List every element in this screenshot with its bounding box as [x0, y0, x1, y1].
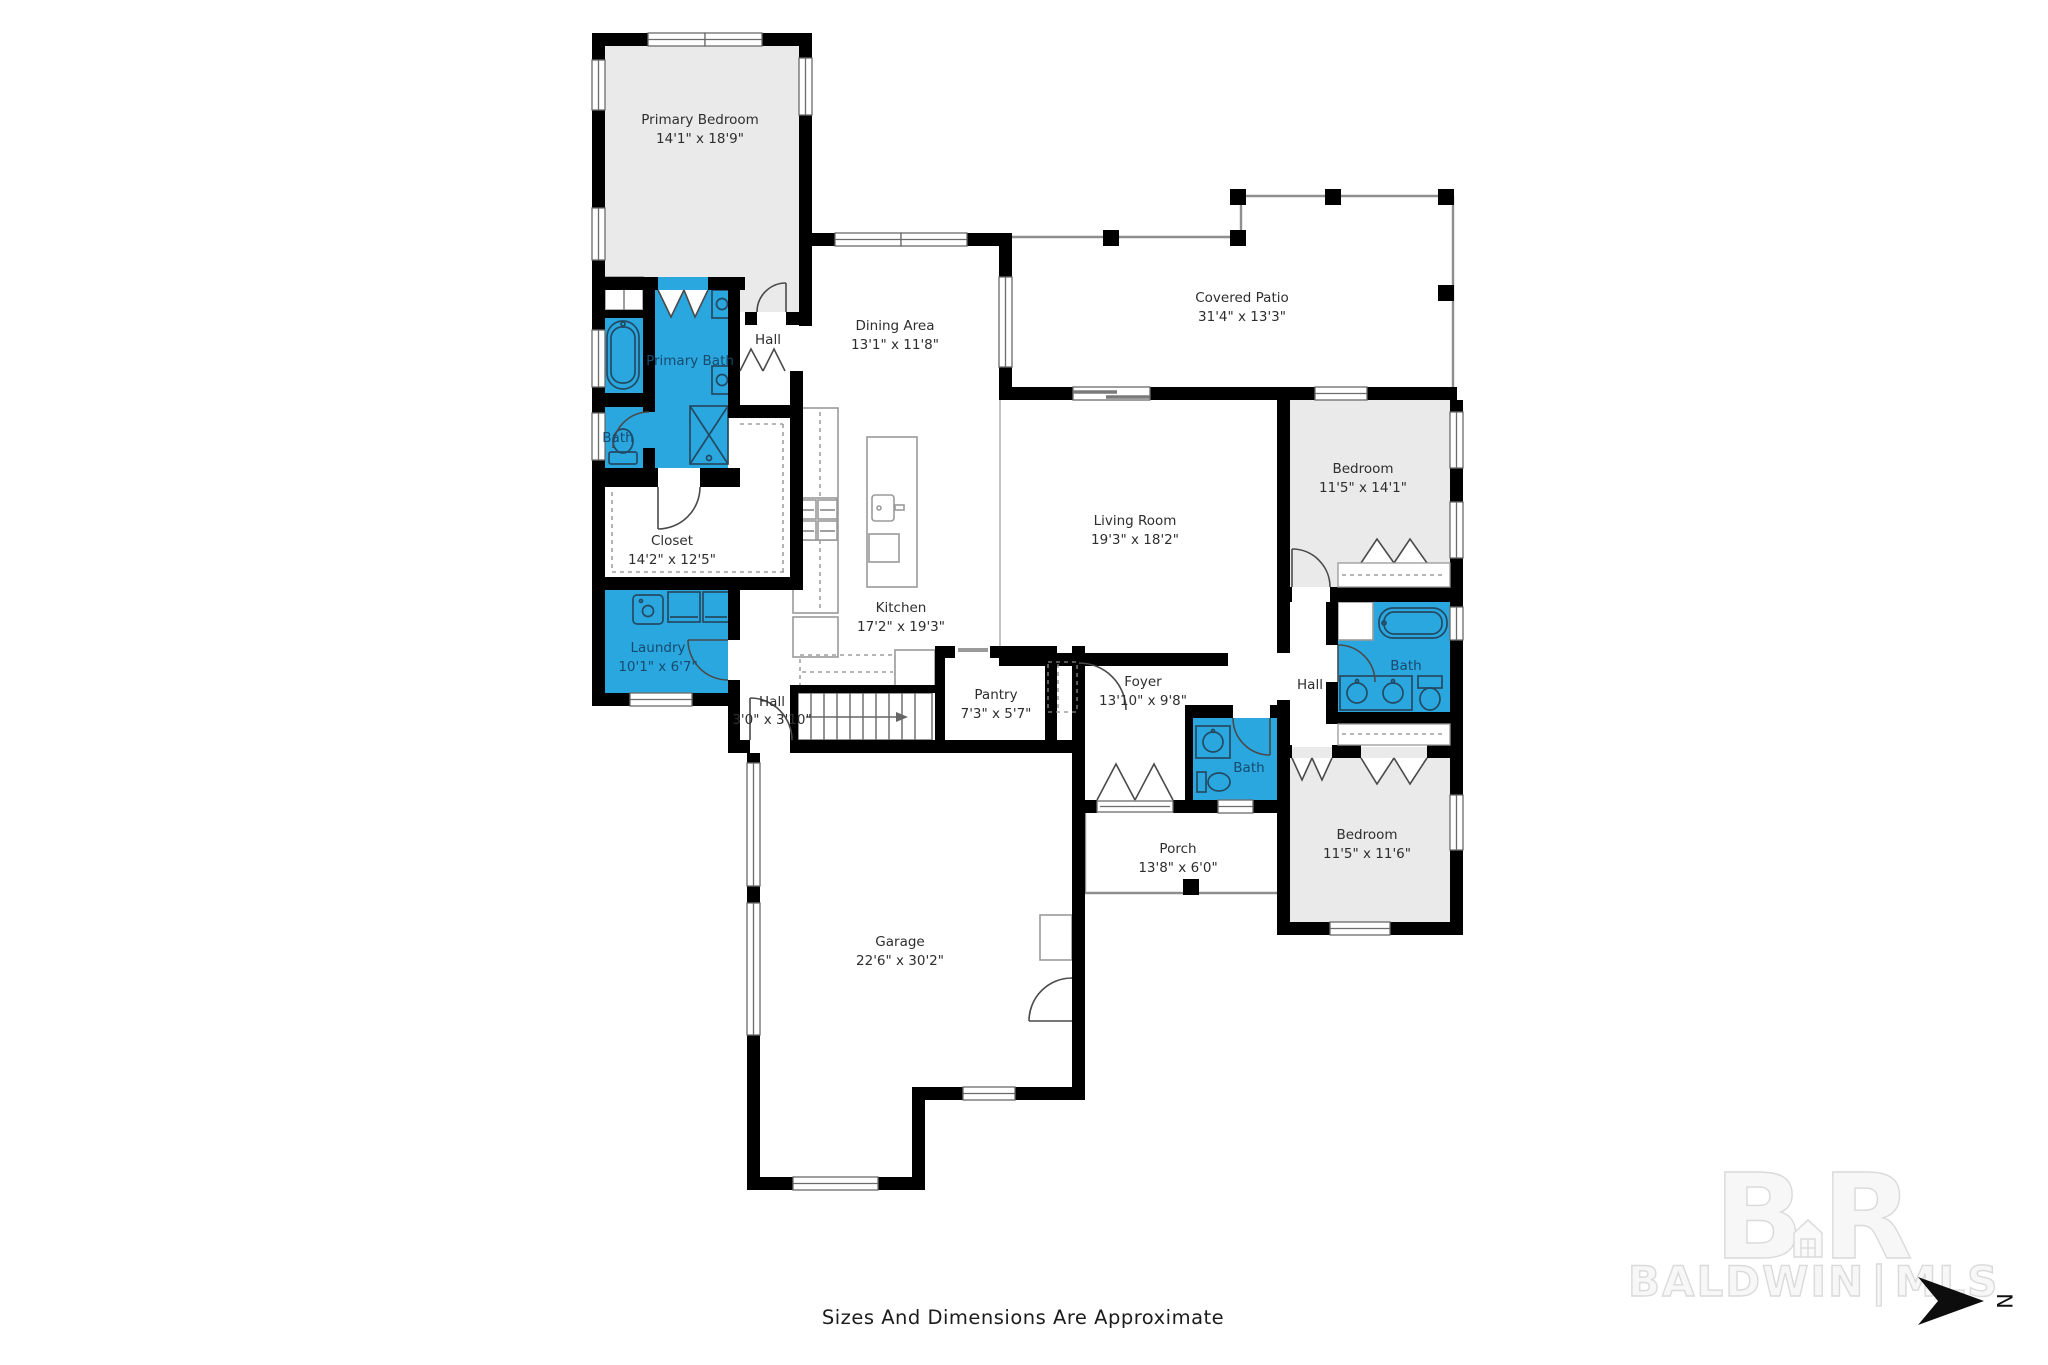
- baldwin-mls-watermark: B R BALDWIN|MLS: [1628, 1148, 1999, 1306]
- label-pantry-dims: 7'3" x 5'7": [961, 706, 1032, 722]
- label-garage: Garage: [875, 934, 924, 950]
- window: [1450, 412, 1463, 468]
- window: [747, 763, 760, 886]
- door: [658, 487, 700, 529]
- window: [835, 233, 901, 246]
- porch-post: [1183, 879, 1199, 895]
- label-kitchen-dims: 17'2" x 19'3": [857, 619, 945, 635]
- label-hall-bedroom: Hall: [1297, 677, 1323, 693]
- stair-cabinet: [895, 650, 935, 688]
- refrigerator: [793, 617, 838, 657]
- patio-post: [1325, 189, 1341, 205]
- label-bedroom-3-dims: 11'5" x 11'6": [1323, 846, 1411, 862]
- label-primary-bedroom: Primary Bedroom: [641, 112, 759, 128]
- label-laundry: Laundry: [630, 640, 685, 656]
- patio-post: [1438, 189, 1454, 205]
- label-primary-bedroom-dims: 14'1" x 18'9": [656, 131, 744, 147]
- garage-fixtures: [1040, 915, 1072, 960]
- bifold-door: [740, 349, 785, 371]
- watermark-brand-left: BALDWIN: [1628, 1257, 1865, 1306]
- floor-plan-page: Primary Bedroom 14'1" x 18'9" Primary Ba…: [0, 0, 2048, 1365]
- label-dining: Dining Area: [856, 318, 935, 334]
- label-bath-shared: Bath: [1390, 658, 1421, 674]
- window: [592, 208, 605, 260]
- north-label: N: [1992, 1293, 2016, 1309]
- primary-bedroom-floor: [605, 46, 799, 312]
- label-primary-bath: Primary Bath: [646, 353, 734, 369]
- label-bedroom-3: Bedroom: [1336, 827, 1397, 843]
- label-porch: Porch: [1159, 841, 1196, 857]
- window: [592, 330, 605, 387]
- stairs: [798, 693, 932, 740]
- label-bedroom-2: Bedroom: [1332, 461, 1393, 477]
- label-covered-patio: Covered Patio: [1195, 290, 1289, 306]
- label-kitchen: Kitchen: [876, 600, 927, 616]
- label-primary-wc: Bath: [602, 430, 633, 446]
- island-sink: [872, 495, 894, 521]
- window: [799, 58, 812, 115]
- window: [630, 693, 692, 706]
- label-covered-patio-dims: 31'4" x 13'3": [1198, 309, 1286, 325]
- window: [999, 277, 1012, 367]
- entry-double-door: [1097, 764, 1173, 812]
- bedroom-2-closet: [1338, 563, 1450, 587]
- label-hall-primary: Hall: [755, 332, 781, 348]
- window: [1315, 387, 1367, 400]
- sliding-door: [1073, 387, 1150, 400]
- patio-post: [1103, 230, 1119, 246]
- primary-bath-floor: [643, 277, 728, 468]
- patio-post: [1230, 230, 1246, 246]
- window: [963, 1087, 1015, 1100]
- label-living: Living Room: [1094, 513, 1177, 529]
- window: [1330, 922, 1390, 935]
- label-foyer-dims: 13'10" x 9'8": [1099, 693, 1187, 709]
- label-bath-foyer: Bath: [1233, 760, 1264, 776]
- watermark-separator: |: [1871, 1257, 1888, 1306]
- window: [1218, 800, 1253, 813]
- bath-closet: [1338, 602, 1373, 640]
- window: [901, 233, 967, 246]
- label-closet: Closet: [651, 533, 693, 549]
- label-hall-stairs: Hall: [759, 694, 785, 710]
- label-garage-dims: 22'6" x 30'2": [856, 953, 944, 969]
- patio-post: [1438, 285, 1454, 301]
- patio-post: [1230, 189, 1246, 205]
- label-bedroom-2-dims: 11'5" x 14'1": [1319, 480, 1407, 496]
- dishwasher: [869, 534, 899, 562]
- linen-closet: [1338, 724, 1450, 745]
- door: [1029, 978, 1072, 1021]
- window: [1450, 502, 1463, 558]
- garage-shelf: [1040, 915, 1072, 960]
- window: [648, 33, 705, 46]
- window: [793, 1177, 878, 1190]
- floor-plan-drawing: Primary Bedroom 14'1" x 18'9" Primary Ba…: [0, 0, 2048, 1365]
- label-hall-stairs-dims: 3'0" x 3'10": [732, 712, 811, 728]
- label-laundry-dims: 10'1" x 6'7": [618, 659, 697, 675]
- window: [1450, 795, 1463, 850]
- footer-note: Sizes And Dimensions Are Approximate: [822, 1306, 1224, 1329]
- label-closet-dims: 14'2" x 12'5": [628, 552, 716, 568]
- label-living-dims: 19'3" x 18'2": [1091, 532, 1179, 548]
- label-dining-dims: 13'1" x 11'8": [851, 337, 939, 353]
- window: [747, 903, 760, 1035]
- label-porch-dims: 13'8" x 6'0": [1138, 860, 1217, 876]
- window: [592, 60, 605, 110]
- window: [705, 33, 762, 46]
- kitchen-island: [867, 437, 917, 587]
- label-pantry: Pantry: [974, 687, 1017, 703]
- label-foyer: Foyer: [1124, 674, 1162, 690]
- window: [1450, 607, 1463, 640]
